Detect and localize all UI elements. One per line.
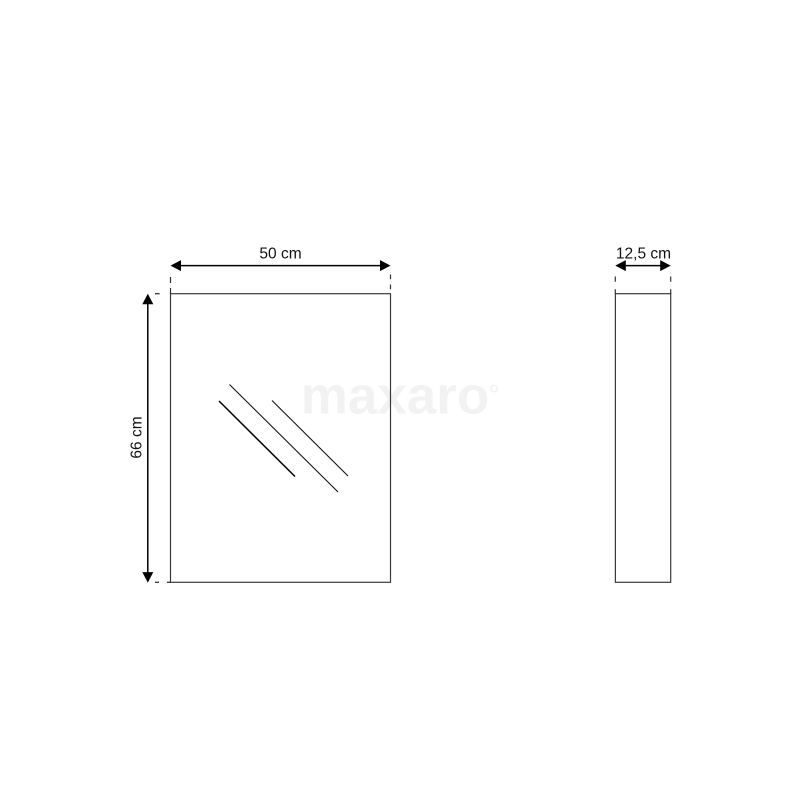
svg-text:maxaro: maxaro <box>301 367 490 426</box>
svg-text:12,5 cm: 12,5 cm <box>616 246 671 263</box>
svg-text:50 cm: 50 cm <box>259 246 301 263</box>
svg-text:66 cm: 66 cm <box>128 416 145 458</box>
